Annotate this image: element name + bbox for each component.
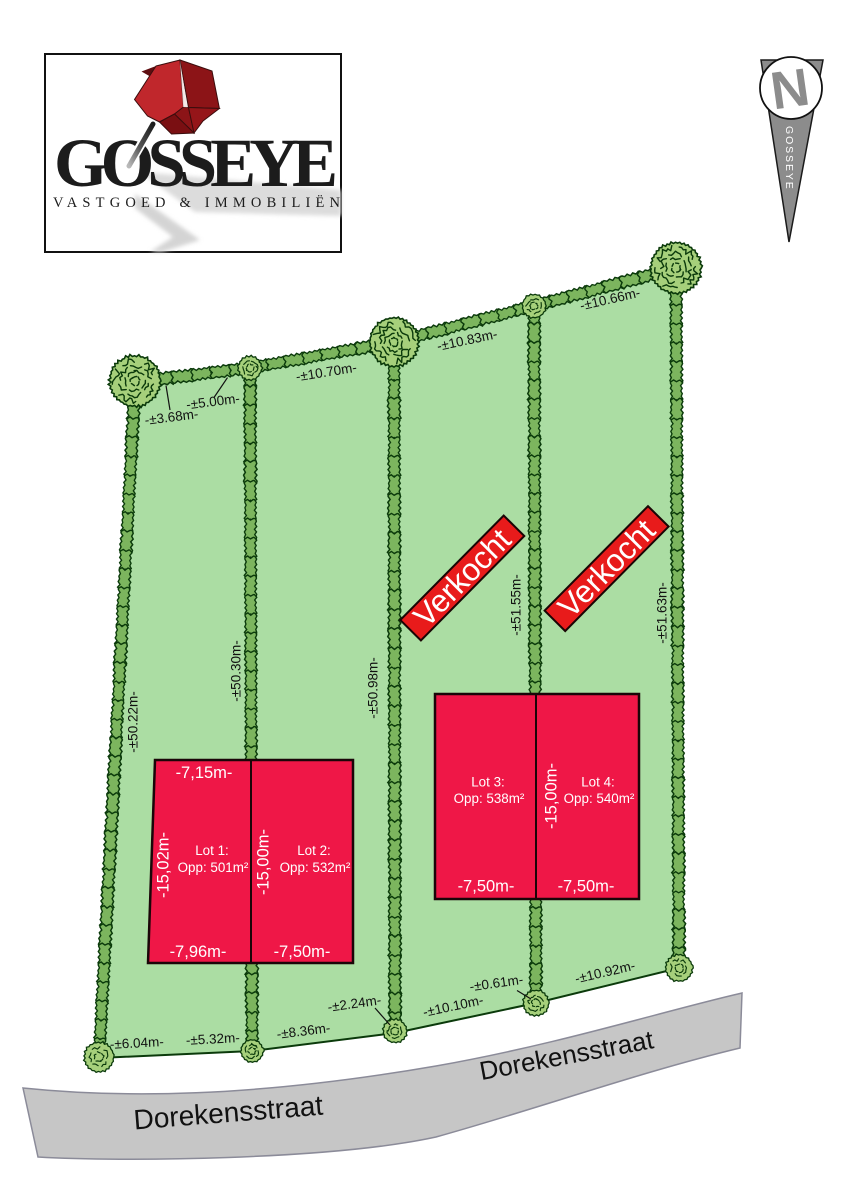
svg-text:-7,15m-: -7,15m- [176,764,233,782]
svg-text:-±51.55m-: -±51.55m- [509,574,524,635]
svg-text:-±50.22m-: -±50.22m- [126,691,141,752]
svg-text:Lot 1:: Lot 1: [195,843,229,858]
svg-text:-7,96m-: -7,96m- [170,943,227,961]
svg-text:-±6.04m-: -±6.04m- [109,1034,164,1052]
svg-text:-±51.63m-: -±51.63m- [654,582,669,643]
svg-text:-7,50m-: -7,50m- [458,878,515,896]
svg-text:VASTGOED & IMMOBILIËN: VASTGOED & IMMOBILIËN [53,194,341,211]
svg-text:-±50.30m-: -±50.30m- [229,640,244,701]
svg-text:Opp: 538m²: Opp: 538m² [454,791,525,806]
svg-text:GOSSEYE: GOSSEYE [783,126,795,191]
svg-text:Lot 4:: Lot 4: [581,775,615,790]
svg-text:Opp: 540m²: Opp: 540m² [564,791,635,806]
svg-text:-7,50m-: -7,50m- [558,878,615,896]
svg-text:-±5.32m-: -±5.32m- [185,1030,240,1048]
svg-text:-15,00m-: -15,00m- [543,763,561,829]
svg-text:N: N [767,58,813,122]
svg-text:Lot 2:: Lot 2: [297,843,331,858]
svg-text:-7,50m-: -7,50m- [274,943,331,961]
svg-text:Opp: 501m²: Opp: 501m² [178,860,249,875]
svg-text:-15,02m-: -15,02m- [154,832,172,898]
svg-text:Opp: 532m²: Opp: 532m² [280,860,351,875]
svg-text:GOSSEYE: GOSSEYE [54,125,338,201]
svg-text:Lot 3:: Lot 3: [471,775,505,790]
svg-text:-15,00m-: -15,00m- [255,829,273,895]
svg-text:-±50.98m-: -±50.98m- [365,657,380,718]
